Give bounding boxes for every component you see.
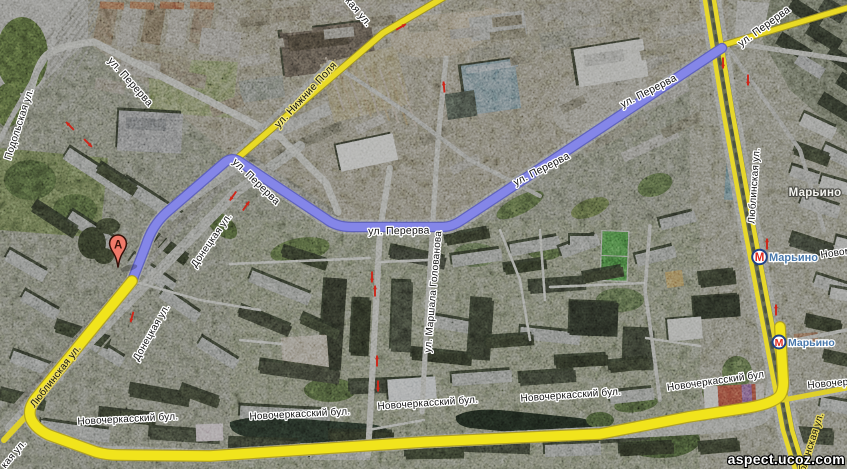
svg-text:Марьино: Марьино (789, 187, 842, 199)
svg-text:Марьино: Марьино (788, 337, 835, 349)
svg-text:A: A (114, 239, 122, 251)
svg-text:Марьино: Марьино (769, 252, 818, 264)
svg-text:М: М (755, 252, 765, 264)
svg-text:М: М (775, 337, 784, 349)
svg-text:aspect.ucoz.com: aspect.ucoz.com (728, 451, 845, 467)
svg-text:ул. Перерва: ул. Перерва (368, 224, 430, 237)
